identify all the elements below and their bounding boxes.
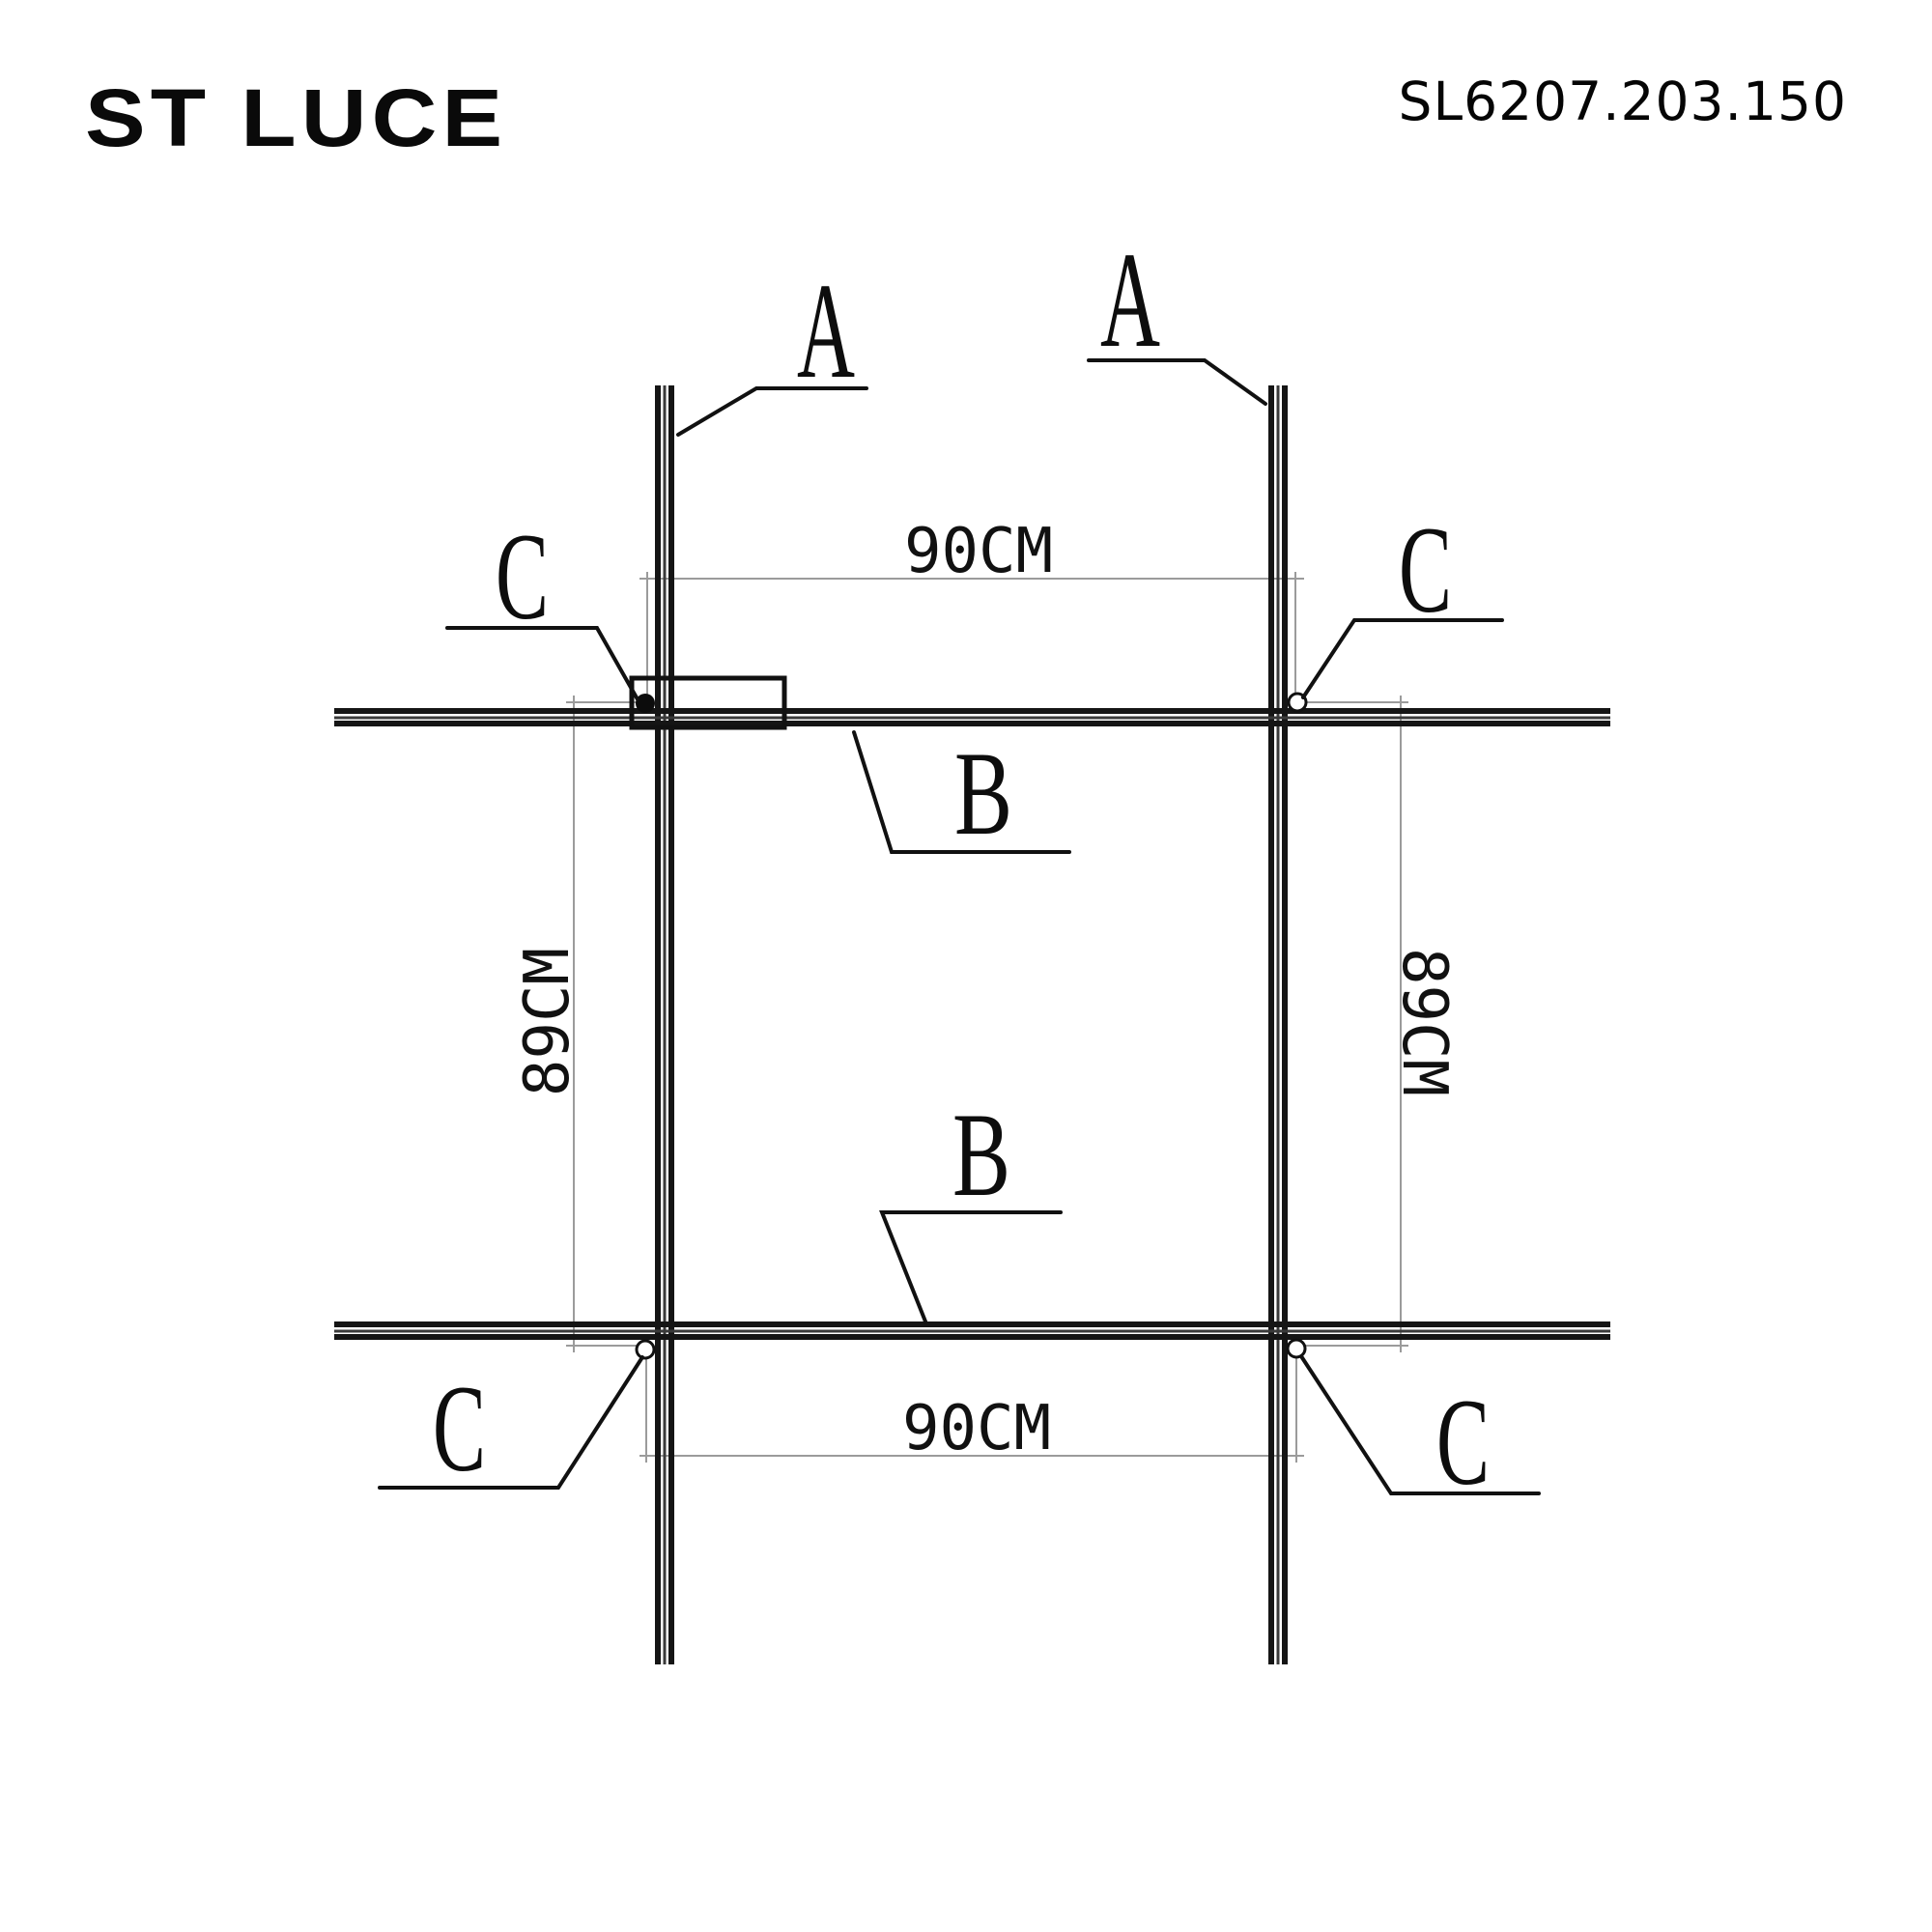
label-c-top-left: C — [496, 508, 549, 645]
label-a-right: A — [1100, 223, 1160, 376]
rod-vertical-left — [658, 385, 671, 1664]
rod-horizontal-top — [334, 711, 1610, 724]
installation-diagram: A A B B C C C C 90CM 90CM 89CM 89CM — [0, 0, 1932, 1932]
leader-c-bottom-left — [380, 1357, 642, 1488]
label-a-left: A — [797, 254, 855, 407]
label-b-top: B — [954, 727, 1012, 860]
datasheet-page: ST LUCE SL6207.203.150 — [0, 0, 1932, 1932]
connector-ring-bottom-left — [637, 1341, 654, 1358]
label-c-bottom-right: C — [1436, 1374, 1490, 1511]
label-c-bottom-left: C — [433, 1360, 486, 1497]
connector-dot-top-left — [636, 694, 655, 713]
dim-text-width-top: 90CM — [904, 516, 1053, 587]
connector-ring-bottom-right — [1288, 1340, 1305, 1357]
dim-text-width-bottom: 90CM — [902, 1393, 1051, 1464]
dim-text-height-left: 89CM — [512, 948, 583, 1096]
label-b-bottom: B — [952, 1089, 1010, 1221]
rod-horizontal-bottom — [334, 1324, 1610, 1337]
leader-c-bottom-right — [1301, 1356, 1539, 1493]
rod-vertical-right — [1271, 385, 1285, 1664]
dim-text-height-right: 89CM — [1388, 948, 1460, 1096]
leader-b-bottom — [882, 1212, 1061, 1321]
label-c-top-right: C — [1399, 501, 1452, 639]
